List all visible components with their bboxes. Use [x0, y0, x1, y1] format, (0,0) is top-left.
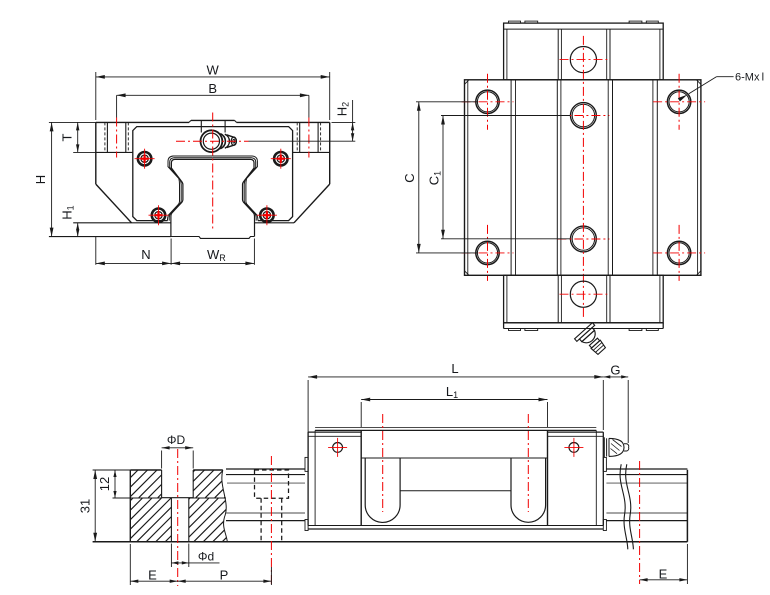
svg-text:P: P [220, 568, 229, 583]
svg-text:G: G [610, 363, 620, 378]
svg-text:H: H [33, 175, 48, 184]
svg-text:N: N [141, 247, 150, 262]
svg-text:31: 31 [78, 499, 93, 513]
svg-text:ΦD: ΦD [167, 433, 186, 447]
svg-text:W: W [207, 63, 220, 78]
svg-text:12: 12 [97, 477, 112, 491]
svg-text:B: B [208, 81, 217, 96]
svg-text:6-Mx l: 6-Mx l [735, 72, 764, 84]
svg-text:T: T [60, 133, 75, 141]
svg-text:C: C [402, 173, 417, 182]
svg-text:E: E [148, 568, 157, 583]
svg-text:Φd: Φd [198, 550, 214, 564]
svg-text:L: L [451, 361, 458, 376]
svg-text:E: E [659, 566, 668, 581]
